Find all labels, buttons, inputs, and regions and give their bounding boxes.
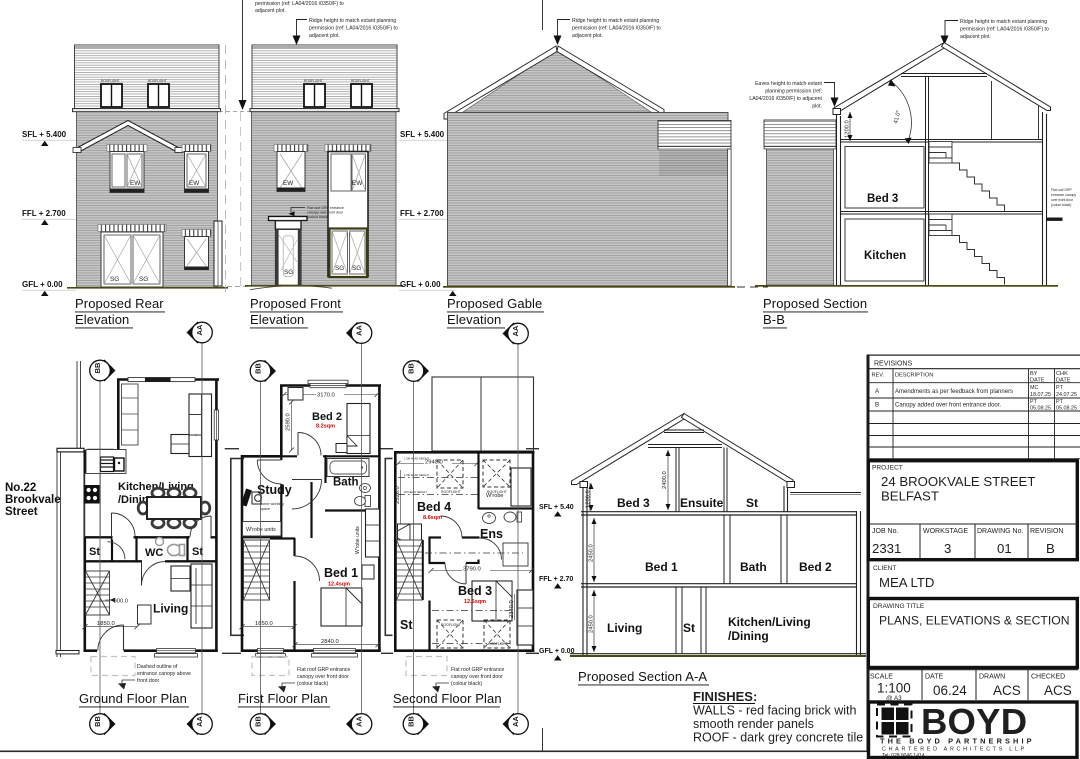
- svg-text:adjacent plot.: adjacent plot.: [960, 34, 991, 40]
- svg-text:BB: BB: [407, 363, 416, 374]
- svg-text:EW: EW: [130, 180, 141, 187]
- svg-text:FFL + 2.700: FFL + 2.700: [400, 209, 444, 218]
- svg-text:plot.: plot.: [812, 104, 822, 110]
- svg-text:Bed 2: Bed 2: [312, 411, 342, 423]
- svg-text:Flat roof GRP entrance: Flat roof GRP entrance: [307, 206, 344, 210]
- svg-text:Bed 3: Bed 3: [617, 496, 650, 510]
- svg-text:3170.0: 3170.0: [317, 393, 335, 399]
- svg-text:SFL + 5.400: SFL + 5.400: [22, 130, 67, 139]
- svg-text:LA04/2016 /0350/F) to adjacent: LA04/2016 /0350/F) to adjacent: [749, 96, 822, 102]
- svg-text:permission (ref: LA04/2016 /03: permission (ref: LA04/2016 /0350/F) to: [572, 26, 661, 32]
- svg-text:W'robe: W'robe: [486, 493, 504, 499]
- svg-text:adjacent plot.: adjacent plot.: [309, 33, 340, 39]
- svg-text:24.07.25: 24.07.25: [1056, 392, 1077, 398]
- svg-text:01: 01: [997, 541, 1012, 556]
- svg-text:8.2sqm: 8.2sqm: [316, 424, 335, 430]
- svg-text:SG: SG: [139, 276, 148, 283]
- svg-text:permission (ref: LA04/2016 /03: permission (ref: LA04/2016 /0350/F) to: [309, 26, 398, 32]
- svg-text:DATE: DATE: [1056, 378, 1071, 384]
- svg-text:2590.0: 2590.0: [286, 413, 292, 431]
- svg-text:PT: PT: [1056, 385, 1064, 391]
- svg-text:Eaves height to match extant: Eaves height to match extant: [755, 81, 822, 87]
- svg-text:Ridge height to match extant p: Ridge height to match extant planning: [309, 18, 396, 24]
- svg-text:18.07.25: 18.07.25: [1030, 392, 1051, 398]
- svg-text:FFL + 2.70: FFL + 2.70: [539, 576, 573, 583]
- svg-text:canopy over front door: canopy over front door: [307, 211, 344, 215]
- svg-text:EW: EW: [189, 180, 200, 187]
- svg-text:W'robe units: W'robe units: [355, 526, 361, 554]
- svg-text:CHECKED: CHECKED: [1031, 674, 1065, 681]
- svg-text:12.5sqm: 12.5sqm: [464, 599, 486, 605]
- svg-text:ROOFLIGHT: ROOFLIGHT: [304, 79, 323, 83]
- svg-text:(colour black): (colour black): [1051, 203, 1071, 207]
- svg-text:SCALE: SCALE: [870, 674, 893, 681]
- svg-text:2526.0: 2526.0: [395, 486, 401, 504]
- svg-text:AA: AA: [195, 716, 204, 727]
- svg-text:GFL + 0.00: GFL + 0.00: [400, 280, 441, 289]
- svg-text:DESCRIPTION: DESCRIPTION: [895, 373, 933, 379]
- svg-text:REVISION: REVISION: [1030, 528, 1063, 535]
- svg-text:PT: PT: [1056, 399, 1064, 405]
- svg-text:FINISHES:: FINISHES:: [693, 689, 757, 704]
- svg-text:2340.0: 2340.0: [509, 600, 515, 618]
- svg-text:PROJECT: PROJECT: [872, 465, 903, 472]
- svg-text:CLIENT: CLIENT: [873, 565, 896, 572]
- svg-text:1.5M HEAD HEIGHT: 1.5M HEAD HEIGHT: [404, 457, 429, 461]
- svg-text:2M HEAD HEIGHT: 2M HEAD HEIGHT: [404, 490, 427, 494]
- svg-text:ROOFLIGHT: ROOFLIGHT: [101, 79, 120, 83]
- svg-text:ROOFLIGHT: ROOFLIGHT: [351, 79, 370, 83]
- svg-text:WALLS - red facing brick with: WALLS - red facing brick with: [693, 704, 857, 718]
- svg-text:Elevation: Elevation: [75, 312, 129, 327]
- svg-text:(colour black): (colour black): [451, 681, 482, 687]
- svg-text:SG: SG: [284, 269, 293, 276]
- svg-text:PLANS, ELEVATIONS & SECTION: PLANS, ELEVATIONS & SECTION: [879, 614, 1070, 628]
- svg-text:12.4sqm: 12.4sqm: [328, 582, 350, 588]
- svg-text:entrance canopy: entrance canopy: [1051, 193, 1076, 197]
- svg-text:GFL + 0.00: GFL + 0.00: [539, 648, 575, 655]
- svg-text:Proposed Section: Proposed Section: [763, 296, 867, 311]
- svg-text:adjacent plot.: adjacent plot.: [255, 8, 286, 14]
- svg-text:First Floor Plan: First Floor Plan: [238, 691, 328, 706]
- svg-text:ROOFLIGHT: ROOFLIGHT: [148, 79, 167, 83]
- svg-text:JOB No.: JOB No.: [872, 528, 899, 535]
- svg-text:canopy over front door: canopy over front door: [451, 674, 503, 680]
- svg-text:space: space: [260, 507, 270, 511]
- svg-text:Proposed Rear: Proposed Rear: [75, 296, 164, 311]
- svg-text:AA: AA: [355, 325, 364, 336]
- svg-text:DRAWING No.: DRAWING No.: [977, 528, 1023, 535]
- svg-text:Proposed Gable: Proposed Gable: [447, 296, 542, 311]
- svg-text:home working: home working: [260, 502, 284, 506]
- svg-text:BB: BB: [254, 716, 263, 727]
- svg-text:SFL + 5.400: SFL + 5.400: [400, 130, 445, 139]
- svg-text:MEA LTD: MEA LTD: [879, 575, 934, 590]
- svg-text:AA: AA: [511, 716, 520, 727]
- svg-text:Living: Living: [153, 602, 188, 616]
- svg-text:3: 3: [944, 541, 951, 556]
- svg-text:CHK: CHK: [1056, 371, 1068, 377]
- svg-text:BB: BB: [93, 716, 102, 727]
- svg-text:Elevation: Elevation: [250, 312, 304, 327]
- svg-text:ACS: ACS: [1044, 683, 1072, 698]
- svg-text:Ridge height to match extant p: Ridge height to match extant planning: [960, 19, 1047, 25]
- svg-text:W'robe units: W'robe units: [246, 527, 276, 533]
- svg-text:Ground Floor Plan: Ground Floor Plan: [79, 691, 187, 706]
- svg-text:B-B: B-B: [763, 312, 785, 327]
- svg-text:2450.0: 2450.0: [589, 615, 595, 633]
- svg-text:1:100: 1:100: [877, 681, 911, 696]
- svg-text:Bed 2: Bed 2: [799, 560, 832, 574]
- svg-text:B: B: [875, 402, 879, 409]
- svg-text:Flat roof GRP entrance: Flat roof GRP entrance: [297, 667, 350, 673]
- svg-text:adjacent plot.: adjacent plot.: [572, 33, 603, 39]
- svg-text:Living: Living: [607, 621, 642, 635]
- svg-text:Tel: 028 9046 1414: Tel: 028 9046 1414: [882, 753, 925, 759]
- svg-text:No.22: No.22: [5, 482, 36, 494]
- svg-text:St: St: [746, 496, 758, 510]
- svg-text:2400.0: 2400.0: [662, 471, 668, 489]
- svg-text:Ridge height to match extant p: Ridge height to match extant planning: [572, 18, 659, 24]
- svg-text:(colour black): (colour black): [307, 215, 329, 219]
- svg-text:Bath: Bath: [740, 560, 767, 574]
- svg-text:2331: 2331: [872, 541, 901, 556]
- svg-text:REVISIONS: REVISIONS: [874, 361, 912, 368]
- svg-text:Bed 3: Bed 3: [867, 193, 898, 205]
- svg-text:Flat roof GRP: Flat roof GRP: [1051, 188, 1072, 192]
- svg-text:SG: SG: [110, 276, 119, 283]
- svg-text:ROOF - dark grey concrete tile: ROOF - dark grey concrete tile: [693, 731, 863, 745]
- svg-text:MC: MC: [1030, 385, 1038, 391]
- svg-text:05.08.25: 05.08.25: [1056, 406, 1077, 412]
- svg-text:Bed 1: Bed 1: [645, 560, 678, 574]
- svg-text:Proposed Section A-A: Proposed Section A-A: [578, 669, 707, 684]
- svg-text:Proposed Front: Proposed Front: [250, 296, 341, 311]
- svg-text:SG: SG: [335, 265, 344, 272]
- svg-text:BB: BB: [407, 716, 416, 727]
- svg-text:permission (ref: LA04/2016 /03: permission (ref: LA04/2016 /0350/F) to: [960, 27, 1049, 33]
- svg-text:DATE: DATE: [1030, 378, 1045, 384]
- svg-text:8.6sqm: 8.6sqm: [423, 515, 442, 521]
- svg-text:smooth render panels: smooth render panels: [693, 717, 814, 731]
- svg-text:ROOFLIGHT: ROOFLIGHT: [441, 490, 461, 494]
- svg-text:permission (ref: LA04/2016 /03: permission (ref: LA04/2016 /0350/F) to: [255, 1, 344, 7]
- svg-text:BB: BB: [93, 363, 102, 374]
- svg-text:DRAWING TITLE: DRAWING TITLE: [873, 603, 925, 610]
- svg-text:AA: AA: [195, 324, 204, 335]
- svg-text:REV.: REV.: [872, 373, 885, 379]
- svg-text:St: St: [400, 618, 413, 632]
- svg-text:ROOFLIGHT: ROOFLIGHT: [441, 623, 461, 627]
- svg-text:Bath: Bath: [333, 477, 359, 489]
- svg-text:Second Floor Plan: Second Floor Plan: [393, 691, 502, 706]
- svg-text:Bed 1: Bed 1: [324, 566, 358, 580]
- svg-text:B: B: [1046, 541, 1055, 556]
- svg-text:Dashed outline of: Dashed outline of: [137, 664, 178, 670]
- svg-text:EW: EW: [283, 180, 294, 187]
- svg-text:AA: AA: [511, 325, 520, 336]
- svg-text:2840.0: 2840.0: [321, 639, 339, 645]
- svg-text:St: St: [683, 621, 695, 635]
- svg-text:St: St: [89, 546, 100, 558]
- svg-text:1200.0: 1200.0: [845, 120, 851, 138]
- svg-text:CHARTERED ARCHITECTS LLP: CHARTERED ARCHITECTS LLP: [882, 747, 1027, 753]
- svg-text:2450.0: 2450.0: [589, 544, 595, 562]
- svg-text:Flat roof GRP entrance: Flat roof GRP entrance: [451, 667, 504, 673]
- svg-text:AA: AA: [355, 716, 364, 727]
- svg-text:/Dining: /Dining: [728, 629, 769, 643]
- svg-text:canopy over front door: canopy over front door: [297, 674, 349, 680]
- svg-text:Ensuite: Ensuite: [680, 496, 724, 510]
- svg-text:PT: PT: [1030, 399, 1038, 405]
- svg-text:DATE: DATE: [925, 674, 943, 681]
- svg-text:Ens: Ens: [480, 527, 503, 541]
- svg-text:planning permission (ref:: planning permission (ref:: [765, 89, 822, 95]
- svg-text:entrance canopy above: entrance canopy above: [137, 671, 191, 677]
- svg-text:BB: BB: [254, 363, 263, 374]
- svg-text:WORKSTAGE: WORKSTAGE: [923, 528, 968, 535]
- svg-text:over front door: over front door: [1051, 198, 1074, 202]
- svg-text:ROOFLIGHT: ROOFLIGHT: [488, 642, 508, 646]
- svg-text:Kitchen: Kitchen: [864, 250, 906, 262]
- svg-text:WC: WC: [145, 547, 163, 559]
- svg-text:SFL + 5.40: SFL + 5.40: [539, 504, 574, 511]
- svg-text:THE BOYD PARTNERSHIP: THE BOYD PARTNERSHIP: [880, 737, 1035, 746]
- svg-text:1850.0: 1850.0: [255, 621, 273, 627]
- svg-text:Amendments as per feedback fro: Amendments as per feedback from planners: [895, 389, 1013, 395]
- svg-text:Brookvale: Brookvale: [5, 494, 61, 506]
- svg-text:Street: Street: [5, 506, 38, 518]
- svg-text:BELFAST: BELFAST: [881, 489, 939, 504]
- svg-text:Kitchen/Living: Kitchen/Living: [728, 615, 811, 629]
- svg-text:SG: SG: [352, 265, 361, 272]
- svg-text:Elevation: Elevation: [447, 312, 501, 327]
- svg-text:EW: EW: [352, 180, 363, 187]
- svg-text:1.5M HEAD HEIGHT: 1.5M HEAD HEIGHT: [404, 473, 429, 477]
- svg-text:1200.0: 1200.0: [586, 490, 592, 508]
- svg-text:Canopy added over front entran: Canopy added over front entrance door.: [895, 403, 1001, 409]
- svg-text:(colour black): (colour black): [297, 681, 328, 687]
- svg-text:front door: front door: [137, 678, 159, 684]
- svg-text:Bed 3: Bed 3: [458, 584, 492, 598]
- svg-text:05.08.25: 05.08.25: [1030, 406, 1051, 412]
- svg-text:FFL + 2.700: FFL + 2.700: [22, 209, 66, 218]
- svg-text:ACS: ACS: [993, 683, 1021, 698]
- svg-text:Study: Study: [257, 483, 292, 497]
- svg-text:DRAWN: DRAWN: [979, 674, 1005, 681]
- svg-text:06.24: 06.24: [933, 683, 967, 698]
- svg-text:24 BROOKVALE STREET: 24 BROOKVALE STREET: [881, 474, 1035, 489]
- svg-text:900.0: 900.0: [114, 599, 129, 605]
- svg-text:GFL + 0.00: GFL + 0.00: [22, 280, 63, 289]
- svg-text:Bed 4: Bed 4: [417, 500, 451, 514]
- svg-text:BY: BY: [1030, 371, 1038, 377]
